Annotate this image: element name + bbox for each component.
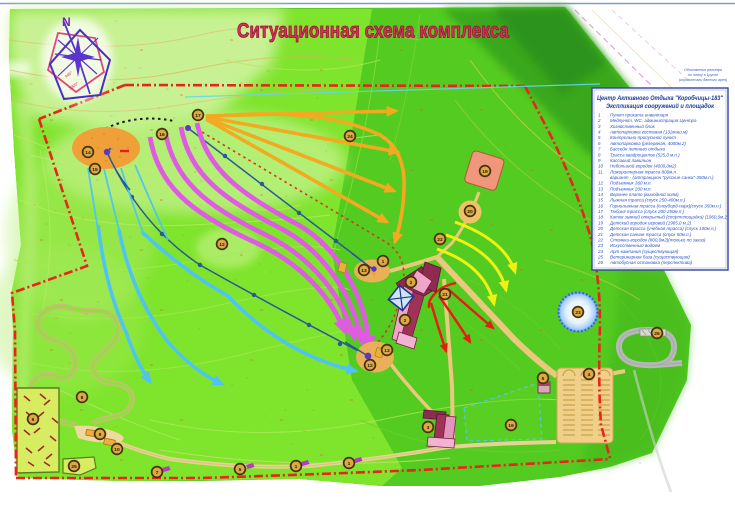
svg-text:вариант - (аттракцион "русские: вариант - (аттракцион "русские санки"-35… <box>610 175 714 180</box>
svg-text:Обозначения рельефа: Обозначения рельефа <box>684 68 722 72</box>
svg-text:Тюбинг трасса (спуск 200-250м.: Тюбинг трасса (спуск 200-250м.п.) <box>610 209 685 214</box>
svg-text:Контрольно-пропускной пункт: Контрольно-пропускной пункт <box>610 134 676 140</box>
svg-text:19: 19 <box>482 169 488 175</box>
svg-text:Подъемник 360 м.п.: Подъемник 360 м.п. <box>610 181 652 186</box>
svg-text:10: 10 <box>598 164 604 169</box>
svg-text:5: 5 <box>542 376 545 382</box>
svg-text:25: 25 <box>71 464 77 470</box>
svg-text:24: 24 <box>347 134 353 140</box>
svg-text:Центр Активного Отдыха "Коробч: Центр Активного Отдыха "Коробчицы-183" <box>597 94 724 102</box>
svg-text:Каток зимний открытый (спортпл: Каток зимний открытый (спортплощадка) (1… <box>610 214 729 220</box>
svg-text:13: 13 <box>384 348 390 354</box>
svg-text:21: 21 <box>442 292 448 298</box>
svg-text:19: 19 <box>598 220 604 225</box>
svg-text:13: 13 <box>361 268 367 274</box>
svg-text:26: 26 <box>654 331 660 337</box>
svg-text:20: 20 <box>597 226 604 231</box>
svg-text:Детская трасса (учебная трасса: Детская трасса (учебная трасса) (спуск 1… <box>609 226 717 231</box>
svg-text:1: 1 <box>348 461 351 467</box>
svg-text:Верхнее плато (выходной холм): Верхнее плато (выходной холм) <box>610 191 679 197</box>
svg-text:12: 12 <box>598 181 604 186</box>
svg-text:15: 15 <box>92 167 98 173</box>
svg-text:16: 16 <box>159 132 165 138</box>
svg-text:по плану в 1русле: по плану в 1русле <box>688 73 718 77</box>
svg-text:10: 10 <box>114 447 120 453</box>
svg-text:26: 26 <box>597 260 604 265</box>
svg-text:Стоянка-городок (800,0м2)(толь: Стоянка-городок (800,0м2)(только по зака… <box>610 238 706 243</box>
svg-text:1: 1 <box>295 464 298 470</box>
svg-text:20: 20 <box>467 209 473 215</box>
svg-text:5: 5 <box>239 467 242 473</box>
svg-text:Пункт проката инвентаря: Пункт проката инвентаря <box>610 113 669 118</box>
svg-text:Небольшой городок (4000,0м2): Небольшой городок (4000,0м2) <box>610 163 676 169</box>
svg-text:Кассовый павильон: Кассовый павильон <box>610 157 652 163</box>
svg-text:7: 7 <box>156 470 159 476</box>
svg-text:2: 2 <box>410 280 413 286</box>
svg-text:Автопарковка гостевая (132маш.: Автопарковка гостевая (132маш.м) <box>609 130 688 135</box>
svg-text:13: 13 <box>598 186 604 191</box>
svg-text:N: N <box>62 15 71 29</box>
svg-text:Детский городок игровой (1985,: Детский городок игровой (1985,0 м.2) <box>609 219 692 225</box>
svg-text:Лыжная трасса (спуск 250-400м.: Лыжная трасса (спуск 250-400м.п.) <box>609 198 686 203</box>
svg-text:19: 19 <box>508 423 514 429</box>
svg-text:17: 17 <box>195 113 201 119</box>
svg-text:Ветеринарная база (существующа: Ветеринарная база (существующая) <box>610 255 690 260</box>
svg-text:Ситуационная схема комплекса: Ситуационная схема комплекса <box>237 19 510 43</box>
svg-text:Искусственный водоем: Искусственный водоем <box>610 242 660 248</box>
svg-text:Автобусная остановка (перспект: Автобусная остановка (перспектива) <box>609 260 693 265</box>
svg-text:12: 12 <box>367 363 373 369</box>
svg-text:Медпункт, WC, администрация Це: Медпункт, WC, администрация Центра <box>610 118 697 123</box>
svg-text:25: 25 <box>597 255 604 260</box>
svg-text:9: 9 <box>99 432 102 438</box>
svg-text:14: 14 <box>85 150 91 156</box>
svg-text:8: 8 <box>81 395 84 401</box>
svg-text:22: 22 <box>437 237 443 243</box>
svg-text:12: 12 <box>219 242 225 248</box>
svg-text:6: 6 <box>32 417 35 423</box>
svg-text:24: 24 <box>597 249 604 254</box>
svg-text:4: 4 <box>588 372 591 378</box>
svg-text:2: 2 <box>404 318 407 324</box>
svg-text:17: 17 <box>598 209 604 214</box>
svg-text:Бассейн летнего отдыха: Бассейн летнего отдыха <box>610 146 666 152</box>
svg-text:Хозяйственный блок: Хозяйственный блок <box>609 123 656 129</box>
svg-text:1: 1 <box>382 259 385 265</box>
svg-text:3: 3 <box>427 425 430 431</box>
svg-text:Ложероллерная трасса 800м.п.: Ложероллерная трасса 800м.п. <box>609 169 677 174</box>
svg-text:21: 21 <box>597 232 604 237</box>
svg-text:Экспликация сооружений и площа: Экспликация сооружений и площадок <box>606 102 715 110</box>
svg-text:Автопарковка (резервная, 4000м: Автопарковка (резервная, 4000м.2) <box>609 141 686 146</box>
svg-text:Подъемник 200 м.п.: Подъемник 200 м.п. <box>610 186 652 191</box>
svg-text:18: 18 <box>598 215 604 220</box>
svg-text:2: 2 <box>597 118 601 123</box>
svg-text:14: 14 <box>598 192 604 197</box>
svg-text:23: 23 <box>597 243 604 248</box>
svg-text:11: 11 <box>598 169 603 174</box>
svg-text:15: 15 <box>598 198 604 203</box>
svg-text:16: 16 <box>598 203 604 208</box>
svg-text:Трасса квадроциклов (525,0 м.п: Трасса квадроциклов (525,0 м.п.) <box>610 152 680 157</box>
svg-text:22: 22 <box>597 238 604 243</box>
svg-text:Арт-кампания (существующая): Арт-кампания (существующая) <box>609 249 679 254</box>
svg-text:(горизонтали данного арен): (горизонтали данного арен) <box>679 78 727 82</box>
svg-text:Детская санная трасса (спуск 5: Детская санная трасса (спуск 50м.п.) <box>609 232 692 237</box>
svg-text:23: 23 <box>575 310 581 316</box>
svg-text:Горнолыжная трасса (сноуборд-п: Горнолыжная трасса (сноуборд-парк)(спуск… <box>610 203 722 208</box>
